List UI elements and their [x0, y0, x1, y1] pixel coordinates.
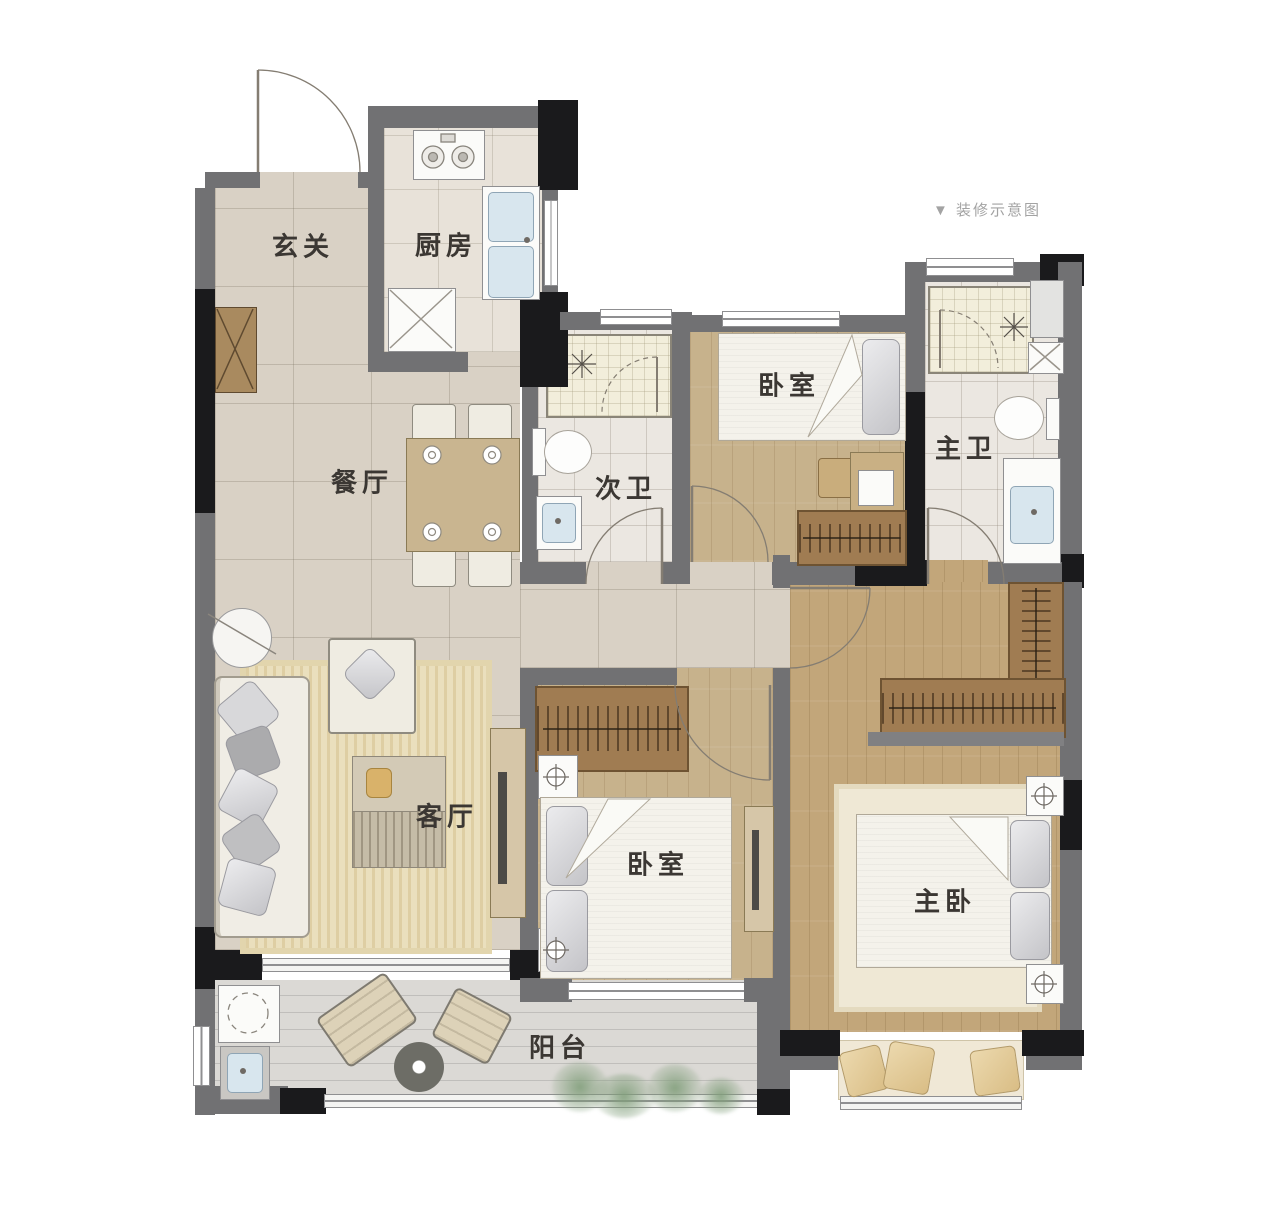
room-label-second-bath: 次卫 [595, 469, 657, 506]
wall-segment [368, 106, 546, 128]
bay-cushion [882, 1040, 936, 1095]
bay-window-glass [840, 1096, 1022, 1110]
water-heater [1030, 280, 1064, 338]
toilet [544, 430, 592, 474]
window [926, 258, 1014, 276]
bay-cushion [969, 1045, 1021, 1097]
desk-chair [818, 458, 854, 498]
window [193, 1026, 210, 1086]
floor-lamp [212, 608, 272, 668]
fridge-space [388, 288, 456, 352]
balcony-sink [227, 1053, 263, 1093]
pillow [1010, 820, 1050, 888]
wall-segment [905, 282, 925, 392]
desk-papers [858, 470, 894, 506]
wall-column [280, 1088, 326, 1114]
wall-column [195, 289, 215, 513]
wall-segment [988, 562, 1062, 584]
pillow [546, 806, 588, 886]
shower-room-master [928, 286, 1034, 374]
floor-masterbath-door [925, 560, 988, 584]
tv-cabinet [744, 806, 774, 932]
room-label-balcony: 阳台 [529, 1028, 591, 1065]
shoe-cabinet [215, 307, 257, 393]
window [722, 311, 840, 327]
toilet [994, 396, 1044, 440]
room-label-bedroom-mid: 卧室 [627, 845, 689, 882]
room-label-foyer: 玄关 [272, 227, 334, 264]
wall-segment [782, 1056, 838, 1070]
window [600, 309, 672, 325]
wall-column [538, 100, 578, 190]
wall-segment [520, 562, 586, 584]
wall-column [1022, 1030, 1084, 1056]
gas-stove [413, 130, 485, 180]
wall-column [520, 292, 568, 387]
kitchen-sink [488, 246, 534, 298]
wardrobe [797, 510, 907, 566]
wall-segment [195, 188, 215, 292]
wall-column [780, 1030, 840, 1056]
tv [498, 772, 507, 884]
wardrobe [880, 678, 1066, 738]
plants [648, 1064, 702, 1112]
wall-segment [1060, 850, 1082, 1032]
pillow [546, 890, 588, 972]
wall-segment [205, 172, 260, 188]
plants [592, 1074, 656, 1118]
tv-cabinet [490, 728, 526, 918]
wall-segment [662, 562, 690, 584]
toilet-tank [1046, 398, 1060, 440]
room-label-master-bedroom: 主卧 [914, 882, 976, 919]
wall-column [905, 392, 925, 562]
wall-segment [368, 352, 468, 372]
wall-column [198, 950, 262, 980]
window [568, 982, 750, 1000]
shaft [1028, 342, 1064, 374]
wall-column [757, 1089, 790, 1115]
nightstand [538, 755, 578, 799]
wardrobe [1008, 582, 1064, 684]
wall-segment [773, 668, 790, 985]
wash-basin [1010, 486, 1054, 544]
room-label-kitchen: 厨房 [415, 226, 477, 263]
floor-plan: 玄关 厨房 餐厅 次卫 卧室 主卫 客厅 卧室 主卧 阳台 ▼ 装修示意图 [0, 0, 1280, 1211]
room-label-dining: 餐厅 [331, 463, 393, 500]
window [544, 200, 558, 286]
room-label-living: 客厅 [416, 797, 478, 834]
room-label-master-bath: 主卫 [935, 429, 997, 466]
wall-segment [520, 978, 572, 1002]
wardrobe-back-wall [868, 732, 1064, 746]
side-table [394, 1042, 444, 1092]
plants [698, 1078, 744, 1114]
wall-segment [744, 978, 790, 1002]
wall-segment [672, 330, 690, 562]
wall-segment [195, 513, 215, 927]
nightstand [1026, 776, 1064, 816]
room-label-bedroom-top: 卧室 [758, 366, 820, 403]
wash-basin [542, 503, 576, 543]
pillow [1010, 892, 1050, 960]
pillow [862, 339, 900, 435]
nightstand [1026, 964, 1064, 1004]
table-decor [366, 768, 392, 798]
washing-machine [218, 985, 280, 1043]
wall-segment [368, 128, 384, 354]
wall-segment [520, 668, 677, 685]
wall-segment [773, 555, 790, 588]
tv [752, 830, 759, 910]
dining-chair [412, 547, 456, 587]
wall-segment [1026, 1056, 1082, 1070]
kitchen-sink [488, 192, 534, 242]
living-balcony-slider [262, 958, 510, 972]
plan-caption: ▼ 装修示意图 [933, 199, 1041, 220]
dining-chair [468, 547, 512, 587]
entry-door [258, 70, 360, 172]
dining-table [406, 438, 520, 552]
